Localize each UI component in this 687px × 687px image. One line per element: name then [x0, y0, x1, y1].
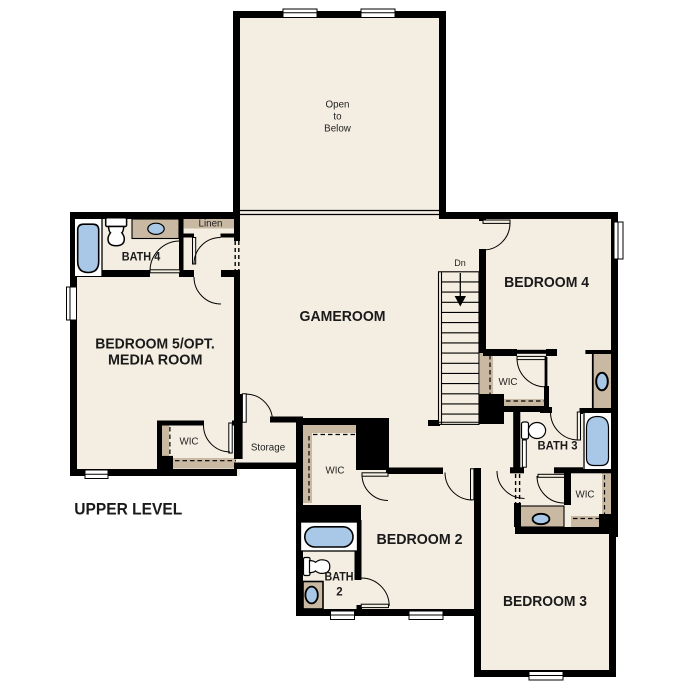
svg-text:BEDROOM 5/OPT.: BEDROOM 5/OPT.	[95, 336, 215, 353]
svg-text:BATH 3: BATH 3	[538, 441, 578, 453]
svg-text:Storage: Storage	[251, 443, 286, 454]
svg-text:Linen: Linen	[199, 219, 223, 230]
svg-text:Dn: Dn	[454, 258, 466, 268]
svg-text:WIC: WIC	[179, 437, 198, 448]
svg-text:Below: Below	[324, 124, 352, 135]
svg-text:BATH: BATH	[325, 571, 354, 583]
svg-text:WIC: WIC	[498, 377, 517, 388]
svg-text:GAMEROOM: GAMEROOM	[300, 308, 386, 325]
svg-text:WIC: WIC	[575, 490, 594, 501]
svg-text:MEDIA ROOM: MEDIA ROOM	[108, 352, 203, 369]
svg-text:UPPER LEVEL: UPPER LEVEL	[74, 501, 182, 519]
svg-text:BEDROOM 2: BEDROOM 2	[377, 531, 463, 548]
svg-text:BATH 4: BATH 4	[122, 252, 161, 264]
svg-text:to: to	[333, 112, 342, 123]
svg-text:WIC: WIC	[325, 466, 344, 477]
svg-text:BEDROOM 3: BEDROOM 3	[503, 593, 587, 610]
svg-text:BEDROOM 4: BEDROOM 4	[504, 274, 590, 291]
svg-text:Open: Open	[326, 100, 350, 111]
svg-text:2: 2	[336, 587, 342, 599]
